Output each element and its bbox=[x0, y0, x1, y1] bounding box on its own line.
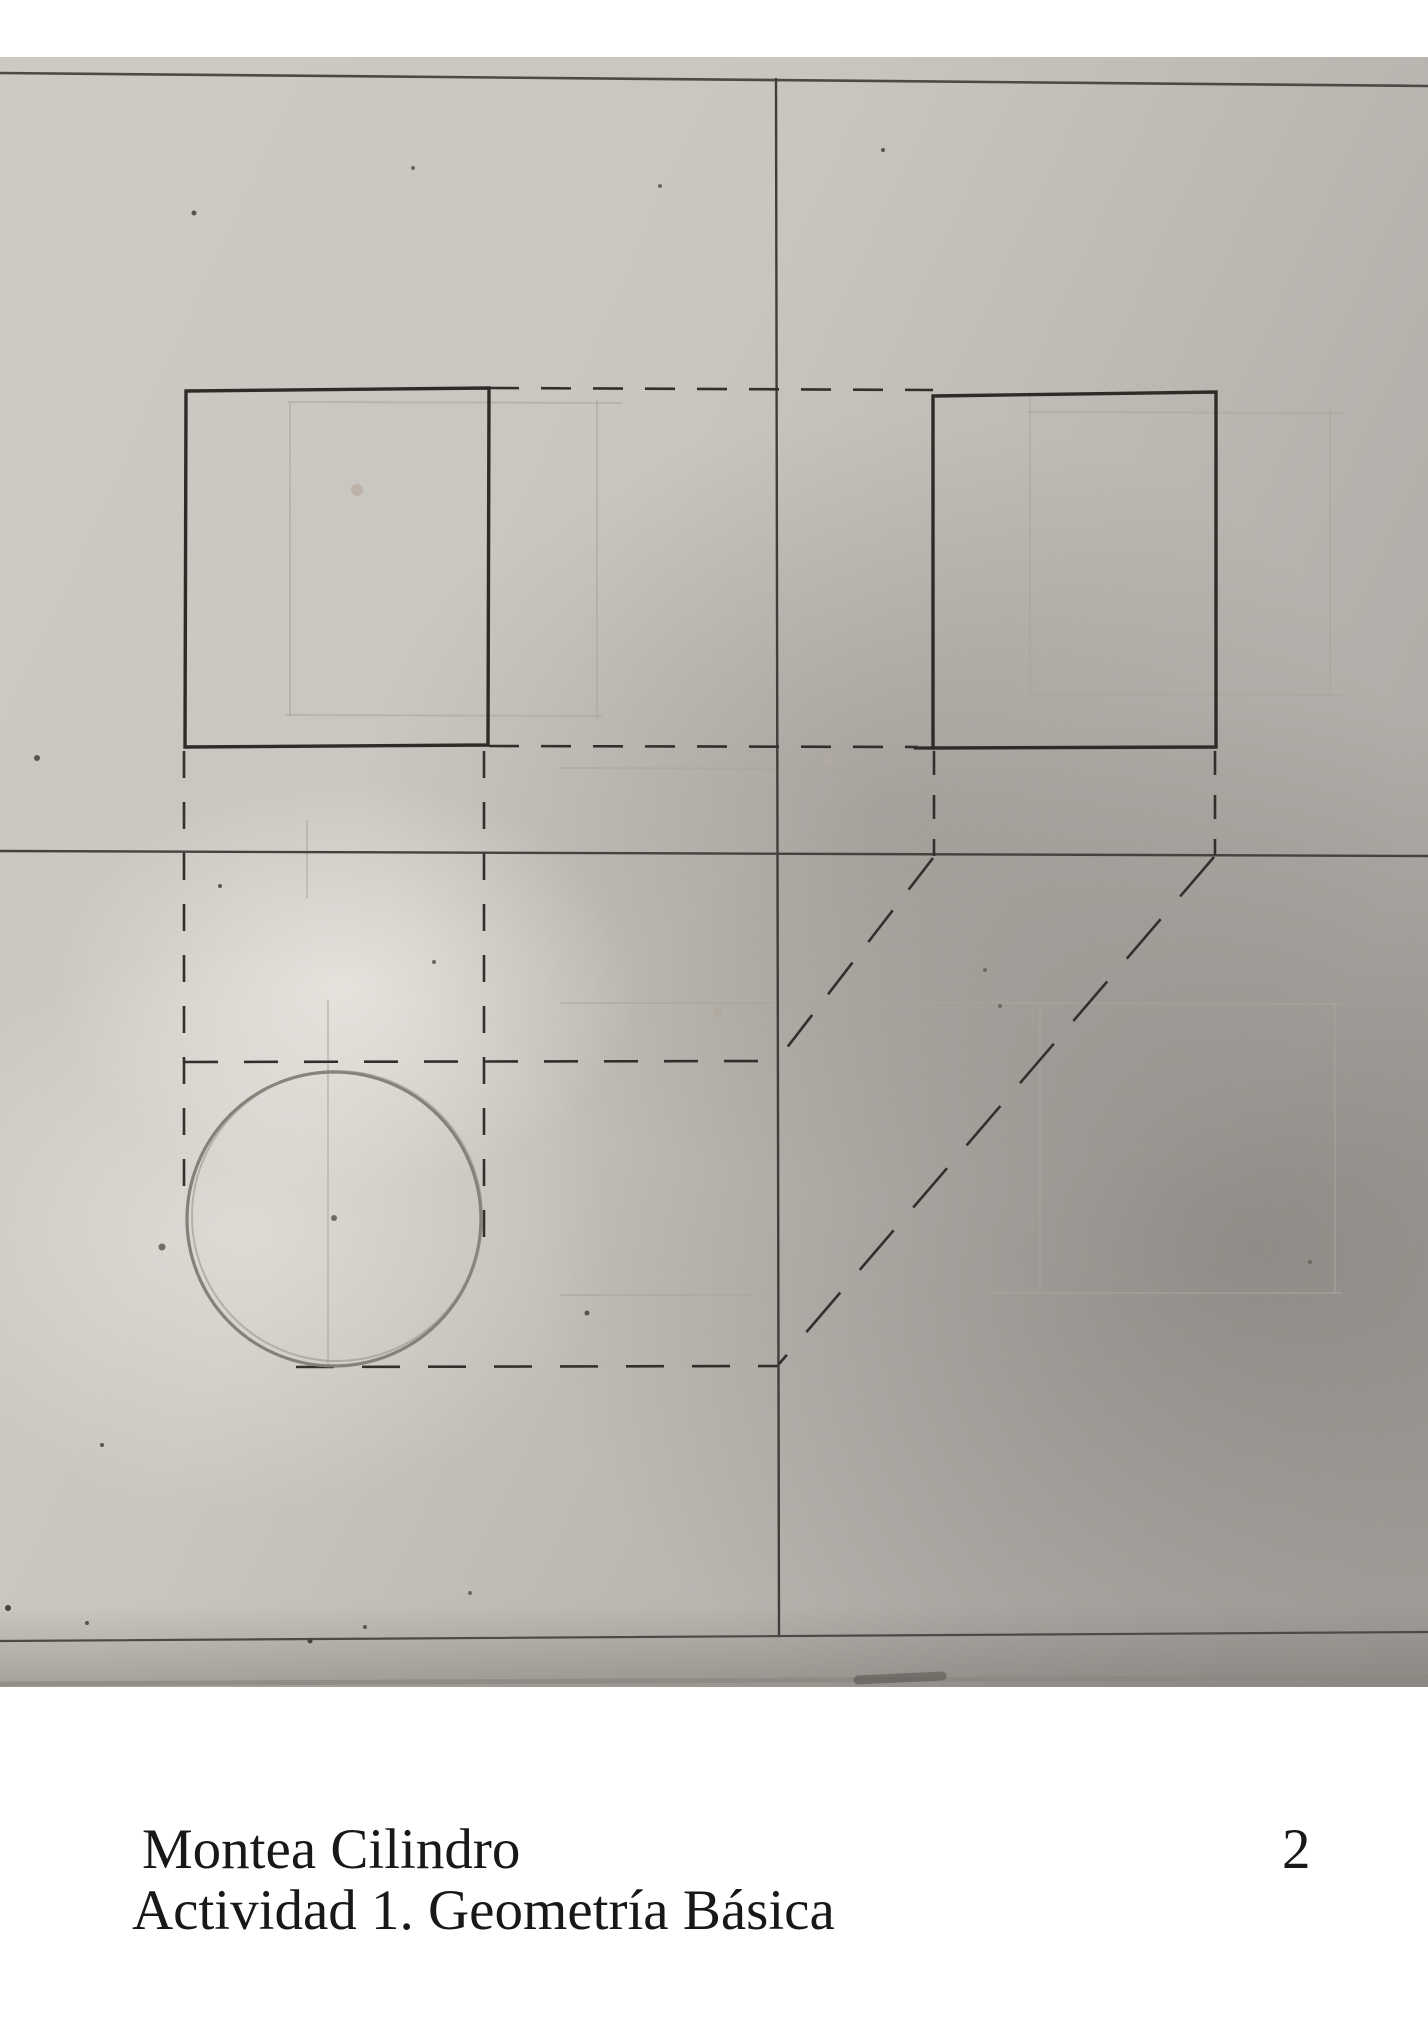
miter-diagonal-long bbox=[779, 857, 1214, 1364]
paper-speck bbox=[658, 184, 662, 188]
paper-speck bbox=[100, 1443, 104, 1447]
paper-speck bbox=[34, 755, 40, 761]
caption-subtitle: Actividad 1. Geometría Básica bbox=[132, 1881, 835, 1941]
pencil-construction-line bbox=[1012, 1003, 1342, 1004]
paper-speck bbox=[998, 1004, 1002, 1008]
miter-diagonal-short bbox=[779, 858, 933, 1058]
paper-speck bbox=[85, 1621, 89, 1625]
projection-top bbox=[489, 388, 933, 390]
paper-speck bbox=[881, 148, 885, 152]
sheet-top-border bbox=[0, 73, 1428, 86]
paper-speck bbox=[825, 755, 835, 765]
paper-speck bbox=[308, 1639, 313, 1644]
projection-bottom bbox=[489, 746, 918, 747]
photo-bottom-edge bbox=[0, 1677, 1428, 1684]
caption-title: Montea Cilindro bbox=[142, 1820, 520, 1880]
page-number: 2 bbox=[1282, 1820, 1311, 1880]
sheet-bottom-border bbox=[0, 1632, 1428, 1641]
montea-drawing-canvas bbox=[0, 0, 1428, 2028]
pencil-construction-line bbox=[285, 715, 602, 716]
photo-bottom-smudge bbox=[858, 1676, 942, 1680]
paper-speck bbox=[713, 1007, 723, 1017]
circle-center-dot bbox=[331, 1215, 337, 1221]
pencil-construction-line bbox=[288, 402, 622, 403]
top-view-upper-edge bbox=[184, 1061, 778, 1062]
paper-speck bbox=[468, 1591, 472, 1595]
paper-speck bbox=[351, 484, 363, 496]
paper-speck bbox=[983, 968, 987, 972]
paper-speck bbox=[5, 1605, 11, 1611]
paper-speck bbox=[1308, 1260, 1312, 1264]
top-view-lower-edge bbox=[296, 1366, 778, 1367]
front-view-rectangle bbox=[185, 388, 489, 747]
pencil-construction-line bbox=[1028, 412, 1342, 413]
paper-speck bbox=[363, 1625, 367, 1629]
paper-speck bbox=[585, 1311, 590, 1316]
pencil-construction-line bbox=[560, 768, 930, 769]
document-page: Montea Cilindro Actividad 1. Geometría B… bbox=[0, 0, 1428, 2028]
paper-speck bbox=[411, 166, 415, 170]
paper-speck bbox=[432, 960, 436, 964]
paper-speck bbox=[159, 1244, 166, 1251]
fold-line-vertical bbox=[776, 79, 779, 1636]
paper-speck bbox=[192, 211, 197, 216]
pencil-construction-line bbox=[1028, 694, 1342, 695]
paper-speck bbox=[218, 884, 222, 888]
